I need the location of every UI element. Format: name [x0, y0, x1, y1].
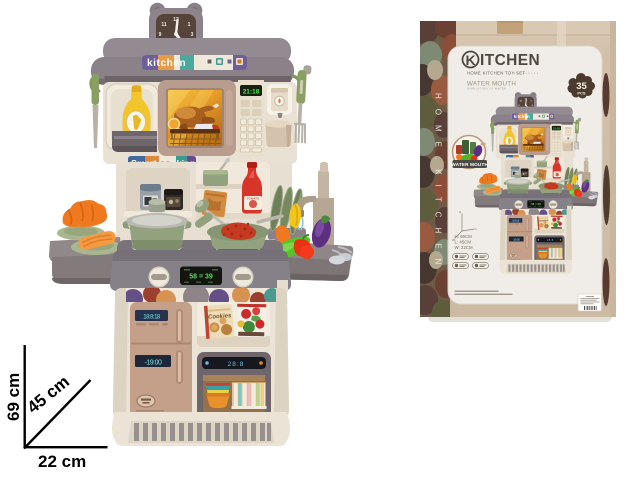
svg-text:-19:00: -19:00 — [145, 360, 162, 367]
svg-text:ITCHEN: ITCHEN — [480, 52, 540, 69]
svg-text:58 = 39: 58 = 39 — [189, 274, 213, 281]
svg-text:11: 11 — [161, 22, 167, 28]
svg-text:H: H — [459, 210, 461, 214]
svg-text:.........: ......... — [514, 70, 540, 75]
svg-text:18:8:18: 18:8:18 — [143, 315, 161, 321]
svg-text:HOME.KITCHEN: HOME.KITCHEN — [434, 93, 443, 274]
svg-text:69 cm: 69 cm — [4, 373, 23, 421]
svg-text:9: 9 — [159, 32, 162, 38]
svg-text:21:18: 21:18 — [243, 89, 260, 96]
svg-text:W: 22CM: W: 22CM — [455, 245, 474, 250]
svg-text:H: 69CM: H: 69CM — [455, 234, 473, 239]
svg-text:SIMULATION OF WATER: SIMULATION OF WATER — [467, 87, 507, 91]
svg-text:28:8: 28:8 — [228, 361, 245, 368]
svg-text:kitchen: kitchen — [147, 58, 186, 69]
svg-text:WATER MOUTH: WATER MOUTH — [451, 162, 488, 167]
svg-text:22 cm: 22 cm — [38, 452, 86, 471]
svg-text:L: 45CM: L: 45CM — [455, 239, 472, 244]
svg-text:TOMATO: TOMATO — [247, 197, 260, 201]
svg-text:K: K — [465, 52, 475, 68]
svg-text:3: 3 — [191, 32, 194, 38]
svg-text:PCS: PCS — [577, 91, 586, 96]
svg-text:1: 1 — [188, 22, 191, 28]
